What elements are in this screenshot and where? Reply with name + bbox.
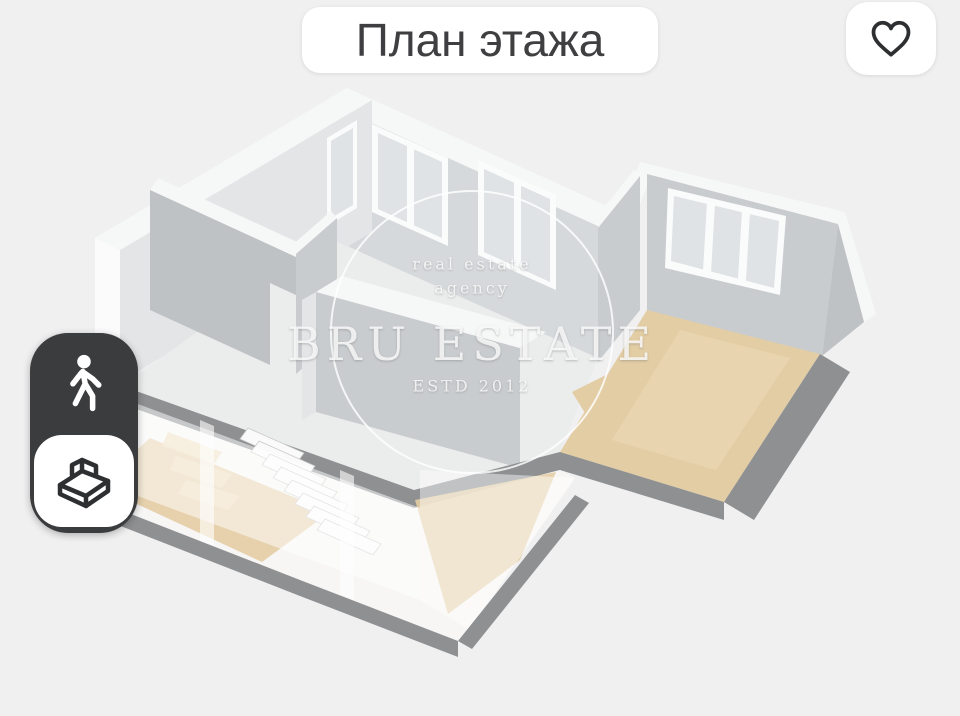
view-mode-toggle xyxy=(30,333,138,533)
screen: real estate agency BRU ESTATE ESTD 2012 … xyxy=(0,0,960,716)
walk-mode-button[interactable] xyxy=(34,339,134,431)
window xyxy=(327,120,357,226)
favorite-button[interactable] xyxy=(846,2,936,75)
heart-outline-icon xyxy=(870,19,912,59)
page-title-label: План этажа xyxy=(356,13,605,67)
walking-person-icon xyxy=(58,353,110,417)
isometric-room-icon xyxy=(52,449,116,513)
page-title: План этажа xyxy=(302,7,658,73)
watermark-brand: BRU ESTATE xyxy=(287,317,657,371)
watermark-tagline: agency xyxy=(434,279,510,298)
watermark-established: ESTD 2012 xyxy=(413,377,532,396)
watermark-tagline: real estate xyxy=(412,255,531,274)
floorplan-3d-mode-button[interactable] xyxy=(34,435,134,527)
